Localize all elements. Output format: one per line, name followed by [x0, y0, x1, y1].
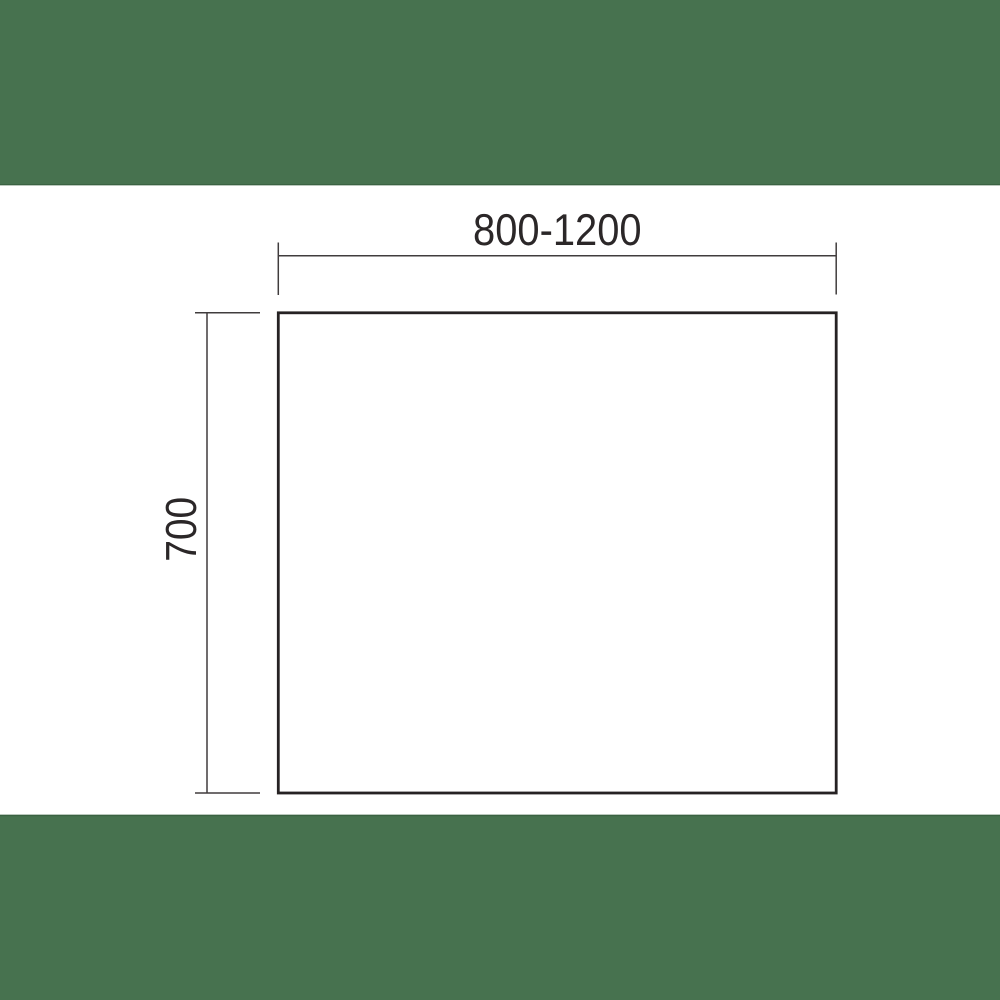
svg-text:800-1200: 800-1200: [473, 206, 642, 255]
svg-text:700: 700: [158, 497, 206, 562]
